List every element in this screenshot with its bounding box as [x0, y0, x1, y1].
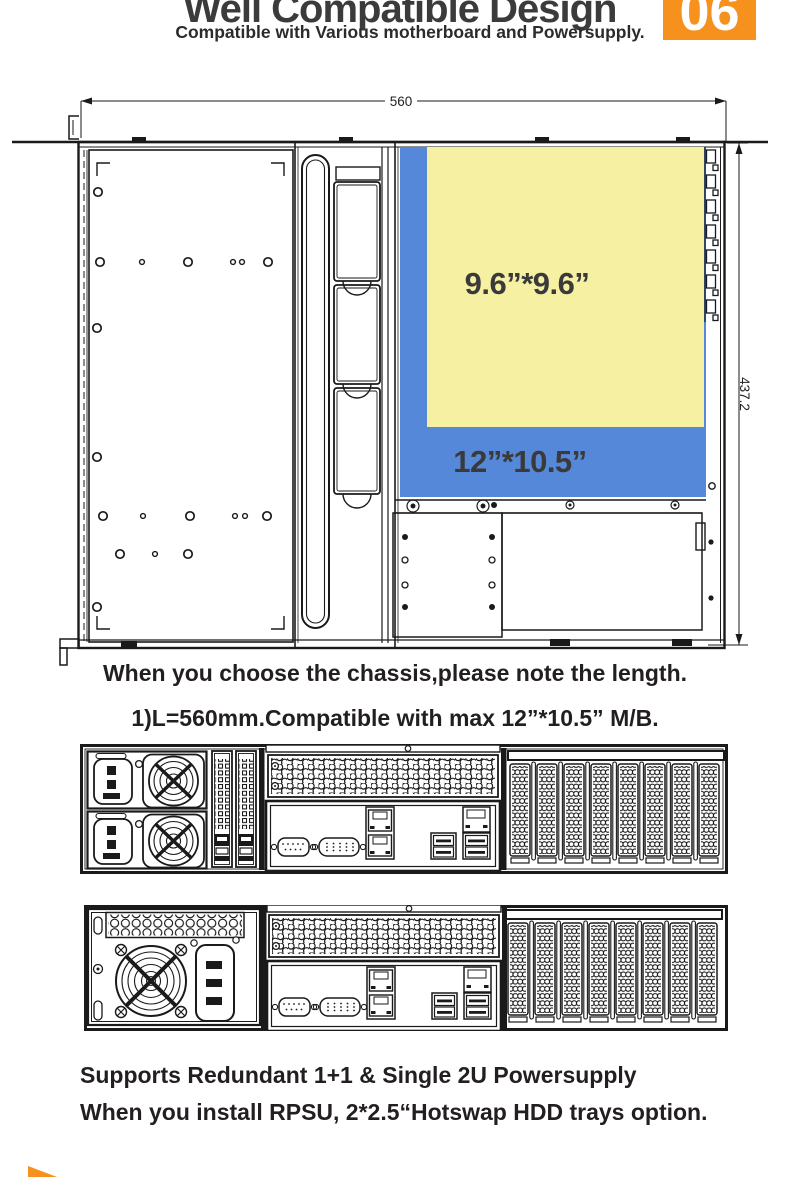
page: Well Compatible Design 06 Compatible wit… [0, 0, 790, 1177]
depth-dimension-label: 437.2 [737, 377, 752, 411]
fan-module-icon [334, 182, 380, 295]
caption-psu-support: Supports Redundant 1+1 & Single 2U Power… [80, 1060, 637, 1090]
badge-number: 06 [663, 0, 756, 42]
hdd-mounting-panel [84, 150, 293, 642]
rear-panel-redundant-psu-drawing [80, 744, 728, 874]
caption-length-spec: 1)L=560mm.Compatible with max 12”*10.5” … [0, 703, 790, 733]
mb-small-label: 9.6”*9.6” [465, 266, 590, 301]
rear-panel-single-psu-drawing [84, 905, 728, 1031]
fan-wall-section [295, 142, 398, 648]
chassis-top-view-diagram: 560 [0, 85, 790, 685]
section-number-badge: 06 [663, 0, 756, 40]
corner-arrow-icon [28, 1166, 57, 1177]
fan-module-icon [334, 285, 380, 398]
width-dimension-label: 560 [390, 94, 413, 109]
caption-note-length: When you choose the chassis,please note … [0, 658, 790, 688]
width-dimension: 560 [81, 94, 726, 141]
rear-slot-castellation [705, 147, 722, 601]
fan-module-icon [334, 388, 380, 508]
caption-rpsu-option: When you install RPSU, 2*2.5“Hotswap HDD… [80, 1097, 707, 1127]
screw-holes-small [140, 260, 248, 557]
screw-holes [93, 188, 272, 611]
mb-large-label: 12”*10.5” [453, 444, 586, 479]
psu-bay-area [393, 500, 706, 637]
page-subtitle: Compatible with Various motherboard and … [160, 22, 660, 43]
